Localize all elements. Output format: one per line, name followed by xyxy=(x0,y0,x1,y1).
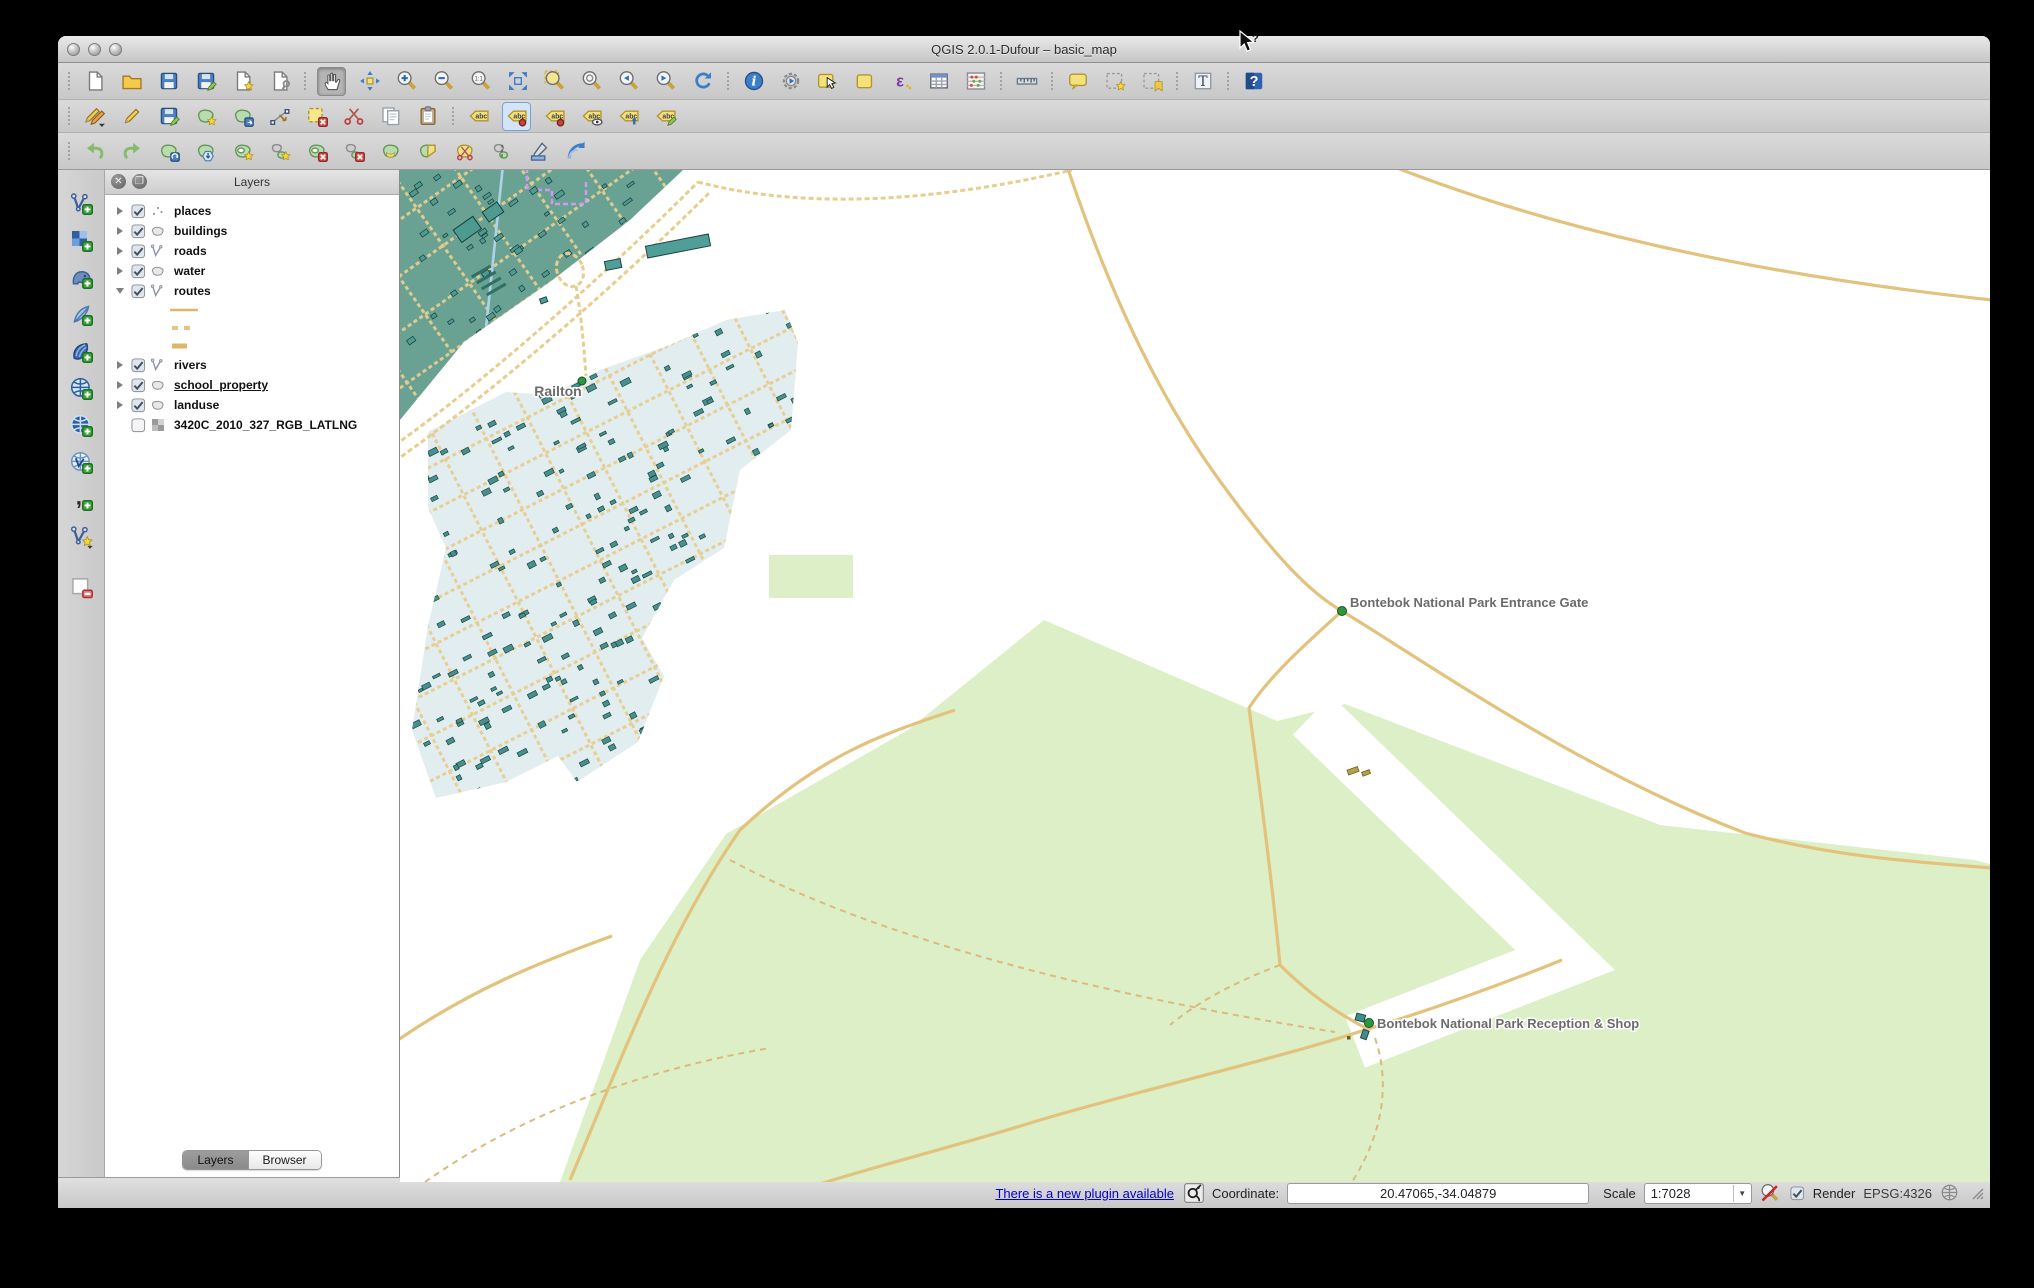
layer-label: rivers xyxy=(174,358,207,372)
add-wfs-layer-icon[interactable] xyxy=(68,448,95,475)
polygon-layer-icon xyxy=(150,377,170,393)
toggle-editing-icon[interactable] xyxy=(118,103,145,130)
node-tool-icon[interactable] xyxy=(266,103,293,130)
close-button[interactable] xyxy=(67,43,80,56)
layer-item-places[interactable]: places xyxy=(105,201,399,221)
render-checkbox[interactable] xyxy=(1788,1183,1808,1203)
resize-grip[interactable] xyxy=(1970,1186,1984,1200)
layer-label: landuse xyxy=(174,398,219,412)
toolbar-digitizing-labeling: abcabcabcabcabcabc xyxy=(58,100,1990,133)
remove-layer-icon[interactable] xyxy=(68,573,95,600)
layer-visibility-checkbox[interactable] xyxy=(131,378,146,393)
layer-label: water xyxy=(174,264,205,278)
add-wcs-layer-icon[interactable] xyxy=(68,411,95,438)
paste-features-icon[interactable] xyxy=(414,103,441,130)
expand-arrow-icon[interactable] xyxy=(113,227,127,235)
toolbar-separator xyxy=(1051,72,1053,90)
qgis-window: QGIS 2.0.1-Dufour – basic_map 1:1iεT? ab… xyxy=(58,36,1990,1208)
zoom-last-icon[interactable] xyxy=(615,68,642,95)
add-feature-icon[interactable] xyxy=(192,103,219,130)
crs-status: EPSG:4326 xyxy=(1863,1186,1932,1201)
identify-features-icon[interactable]: i xyxy=(740,68,767,95)
layer-tree: placesbuildingsroadswaterroutesriverssch… xyxy=(105,195,399,1143)
layer-label: 3420C_2010_327_RGB_LATLNG xyxy=(174,418,357,432)
offset-curve-icon[interactable] xyxy=(562,138,589,165)
map-tips-icon[interactable] xyxy=(1064,68,1091,95)
delete-ring-icon[interactable] xyxy=(303,138,330,165)
show-bookmarks-icon[interactable] xyxy=(1138,68,1165,95)
expand-arrow-icon[interactable] xyxy=(113,381,127,389)
toolbar-separator xyxy=(68,72,70,90)
layer-label: routes xyxy=(174,284,211,298)
toolbar-separator xyxy=(68,107,70,125)
minimize-button[interactable] xyxy=(88,43,101,56)
layer-item-school_property[interactable]: school_property xyxy=(105,375,399,395)
gate-label: Bontebok National Park Entrance Gate xyxy=(1350,595,1588,610)
expand-arrow-icon[interactable] xyxy=(113,247,127,255)
new-print-composer-icon[interactable] xyxy=(229,68,256,95)
layer-item-rivers[interactable]: rivers xyxy=(105,355,399,375)
split-features-icon[interactable] xyxy=(451,138,478,165)
cut-features-icon[interactable] xyxy=(340,103,367,130)
window-controls xyxy=(67,43,122,56)
layer-item-landuse[interactable]: landuse xyxy=(105,395,399,415)
zoom-actual-size-icon[interactable]: 1:1 xyxy=(467,68,494,95)
scale-label: Scale xyxy=(1603,1186,1636,1201)
add-wms-layer-icon[interactable] xyxy=(68,374,95,401)
layer-item-water[interactable]: water xyxy=(105,261,399,281)
expand-arrow-icon[interactable] xyxy=(113,361,127,369)
scale-value: 1:7028 xyxy=(1651,1186,1691,1201)
new-project-icon[interactable] xyxy=(81,68,108,95)
svg-text:,: , xyxy=(76,484,82,509)
expand-arrow-icon[interactable] xyxy=(113,207,127,215)
zoom-to-layer-icon[interactable] xyxy=(541,68,568,95)
add-vector-layer-icon[interactable] xyxy=(68,189,95,216)
close-panel-button[interactable]: ✕ xyxy=(111,174,126,189)
layer-item-buildings[interactable]: buildings xyxy=(105,221,399,241)
simplify-feature-icon[interactable] xyxy=(192,138,219,165)
zoom-button[interactable] xyxy=(109,43,122,56)
measure-line-icon[interactable] xyxy=(1013,68,1040,95)
manage-layers-toolbar: , xyxy=(58,170,105,1177)
title-bar[interactable]: QGIS 2.0.1-Dufour – basic_map xyxy=(58,36,1990,63)
render-label: Render xyxy=(1813,1186,1856,1201)
refresh-map-icon[interactable] xyxy=(689,68,716,95)
scale-combobox[interactable]: 1:7028 ▼ xyxy=(1644,1183,1752,1204)
reception-label: Bontebok National Park Reception & Shop xyxy=(1377,1016,1639,1031)
svg-text:i: i xyxy=(751,75,756,90)
add-mssql-layer-icon[interactable] xyxy=(68,337,95,364)
legend-symbol-solid xyxy=(105,301,399,319)
town-label: Railton xyxy=(534,383,581,399)
panel-tab-browser[interactable]: Browser xyxy=(248,1151,321,1169)
delete-selected-icon[interactable] xyxy=(303,103,330,130)
toolbar-separator xyxy=(452,107,454,125)
text-annotation-icon[interactable]: T xyxy=(1189,68,1216,95)
zoom-out-icon[interactable] xyxy=(430,68,457,95)
polygon-layer-icon xyxy=(150,263,170,279)
coordinate-label: Coordinate: xyxy=(1212,1186,1279,1201)
run-feature-action-icon[interactable] xyxy=(777,68,804,95)
panel-tabs: LayersBrowser xyxy=(105,1143,399,1177)
panel-tab-layers[interactable]: Layers xyxy=(183,1151,247,1169)
layer-visibility-checkbox[interactable] xyxy=(131,244,146,259)
delete-part-icon[interactable] xyxy=(340,138,367,165)
layer-label: buildings xyxy=(174,224,227,238)
pin-unpin-labels-icon[interactable]: abc xyxy=(502,102,531,131)
reception-marker xyxy=(1365,1019,1374,1028)
help-contents-icon[interactable]: ? xyxy=(1240,68,1267,95)
layer-visibility-checkbox[interactable] xyxy=(131,418,146,433)
reshape-features-icon[interactable] xyxy=(414,138,441,165)
move-feature-icon[interactable] xyxy=(229,103,256,130)
line-layer-icon xyxy=(150,283,170,299)
gate-marker xyxy=(1338,607,1347,616)
line-layer-icon xyxy=(150,357,170,373)
layer-label: places xyxy=(174,204,211,218)
current-edits-icon[interactable] xyxy=(81,103,108,130)
toolbar-separator xyxy=(727,72,729,90)
raster-layer-icon xyxy=(150,417,170,433)
merge-features-icon[interactable] xyxy=(488,138,515,165)
line-layer-icon xyxy=(150,243,170,259)
new-bookmark-icon[interactable] xyxy=(1101,68,1128,95)
copy-features-icon[interactable] xyxy=(377,103,404,130)
coordinate-input[interactable]: 20.47065,-34.04879 xyxy=(1287,1183,1589,1204)
polygon-layer-icon xyxy=(150,223,170,239)
save-layer-edits-icon[interactable] xyxy=(155,103,182,130)
svg-text:T: T xyxy=(1198,74,1208,90)
layer-visibility-checkbox[interactable] xyxy=(131,264,146,279)
map-canvas[interactable]: Railton Bontebok National Park Entrance … xyxy=(400,170,1990,1177)
rotate-point-symbols-icon[interactable] xyxy=(525,138,552,165)
new-shapefile-layer-icon[interactable] xyxy=(68,522,95,549)
pan-map-icon[interactable] xyxy=(317,67,346,96)
toolbar-separator xyxy=(1176,72,1178,90)
select-by-expression-icon[interactable]: ε xyxy=(888,68,915,95)
plugin-available-link[interactable]: There is a new plugin available xyxy=(995,1186,1174,1201)
add-ring-icon[interactable] xyxy=(229,138,256,165)
fill-ring-icon[interactable] xyxy=(377,138,404,165)
save-project-icon[interactable] xyxy=(155,68,182,95)
select-features-icon[interactable] xyxy=(814,68,841,95)
add-delimited-text-layer-icon[interactable]: , xyxy=(68,485,95,512)
layer-visibility-checkbox[interactable] xyxy=(131,284,146,299)
field-calculator-icon[interactable] xyxy=(962,68,989,95)
open-attribute-table-icon[interactable] xyxy=(925,68,952,95)
layer-visibility-checkbox[interactable] xyxy=(131,224,146,239)
change-label-properties-icon[interactable]: abc xyxy=(652,103,679,130)
toolbar-separator xyxy=(68,142,70,160)
layer-label: school_property xyxy=(174,378,268,392)
polygon-layer-icon xyxy=(150,397,170,413)
zoom-to-selection-icon[interactable] xyxy=(578,68,605,95)
chevron-down-icon[interactable]: ▼ xyxy=(1733,1185,1751,1202)
window-title: QGIS 2.0.1-Dufour – basic_map xyxy=(931,42,1117,57)
points-layer-icon xyxy=(150,203,170,219)
collapse-arrow-icon[interactable] xyxy=(113,288,127,294)
layers-panel: ✕ ❐ Layers placesbuildingsroadswaterrout… xyxy=(105,170,400,1177)
show-hide-labels-icon[interactable]: abc xyxy=(578,103,605,130)
layer-visibility-checkbox[interactable] xyxy=(131,398,146,413)
redo-icon[interactable] xyxy=(118,138,145,165)
layers-panel-title: Layers xyxy=(105,175,399,189)
add-spatialite-layer-icon[interactable] xyxy=(68,300,95,327)
rotate-feature-icon[interactable] xyxy=(155,138,182,165)
save-project-as-icon[interactable] xyxy=(192,68,219,95)
composer-manager-icon[interactable] xyxy=(266,68,293,95)
svg-text:ε: ε xyxy=(896,73,904,91)
toolbar-advanced-digitizing xyxy=(58,133,1990,170)
expand-arrow-icon[interactable] xyxy=(113,401,127,409)
move-label-icon[interactable]: abc xyxy=(615,103,642,130)
toolbar-separator xyxy=(304,72,306,90)
add-postgis-layer-icon[interactable] xyxy=(68,263,95,290)
layer-labeling-options-icon[interactable]: abc xyxy=(465,103,492,130)
toolbar-separator xyxy=(1227,72,1229,90)
layer-label: roads xyxy=(174,244,207,258)
plugin-icon[interactable] xyxy=(1184,1183,1204,1203)
layer-visibility-checkbox[interactable] xyxy=(131,358,146,373)
crs-globe-icon[interactable] xyxy=(1940,1183,1960,1203)
legend-symbol-dash xyxy=(105,337,399,355)
layers-panel-header: ✕ ❐ Layers xyxy=(105,170,399,195)
svg-text:abc: abc xyxy=(475,114,487,121)
deselect-features-icon[interactable] xyxy=(851,68,878,95)
svg-text:?: ? xyxy=(1249,74,1258,90)
pan-to-selection-icon[interactable] xyxy=(356,68,383,95)
svg-text:1:1: 1:1 xyxy=(474,77,483,83)
add-raster-layer-icon[interactable] xyxy=(68,226,95,253)
add-part-icon[interactable] xyxy=(266,138,293,165)
zoom-in-icon[interactable] xyxy=(393,68,420,95)
toolbar-separator xyxy=(1000,72,1002,90)
open-project-icon[interactable] xyxy=(118,68,145,95)
undo-icon[interactable] xyxy=(81,138,108,165)
float-panel-button[interactable]: ❐ xyxy=(132,174,147,189)
toolbar-file-nav: 1:1iεT? xyxy=(58,63,1990,100)
expand-arrow-icon[interactable] xyxy=(113,267,127,275)
highlight-pinned-labels-icon[interactable]: abc xyxy=(541,103,568,130)
scale-lock-icon[interactable] xyxy=(1760,1183,1780,1203)
layer-item-3420C_2010_327_RGB_LATLNG[interactable]: 3420C_2010_327_RGB_LATLNG xyxy=(105,415,399,435)
zoom-full-extent-icon[interactable] xyxy=(504,68,531,95)
legend-symbol-dashes xyxy=(105,319,399,337)
layer-item-roads[interactable]: roads xyxy=(105,241,399,261)
layer-visibility-checkbox[interactable] xyxy=(131,204,146,219)
school-property-area xyxy=(769,555,853,598)
zoom-next-icon[interactable] xyxy=(652,68,679,95)
layer-item-routes[interactable]: routes xyxy=(105,281,399,301)
